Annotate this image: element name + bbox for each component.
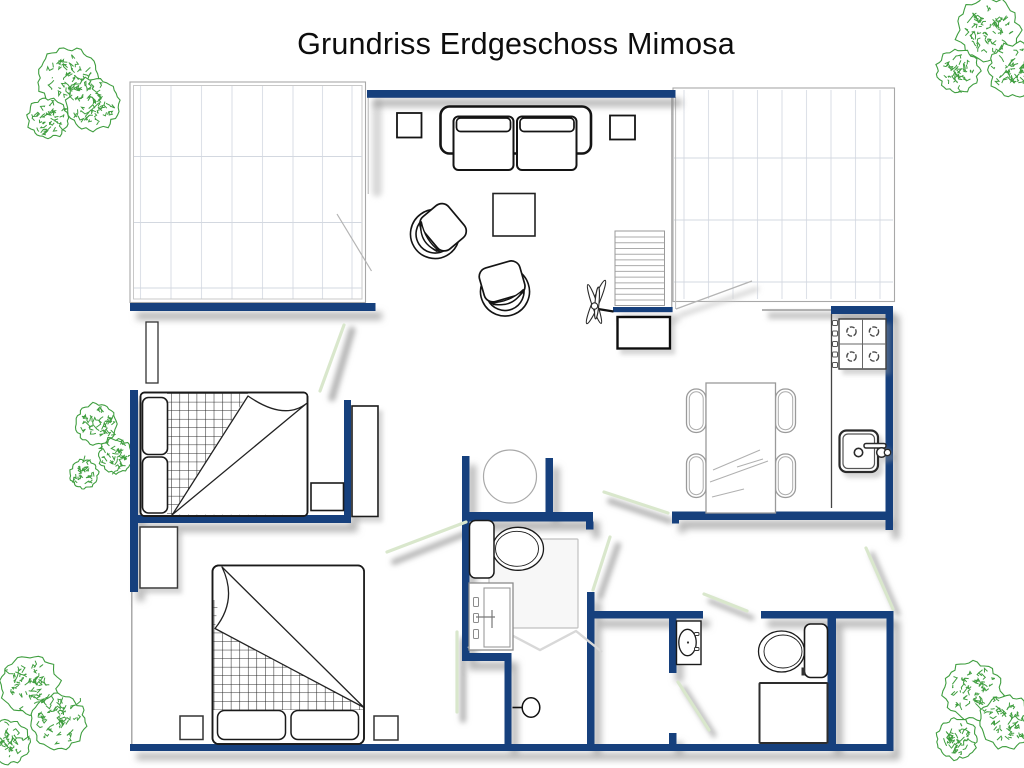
svg-text:Grundriss Erdgeschoss Mimosa: Grundriss Erdgeschoss Mimosa <box>297 27 735 61</box>
